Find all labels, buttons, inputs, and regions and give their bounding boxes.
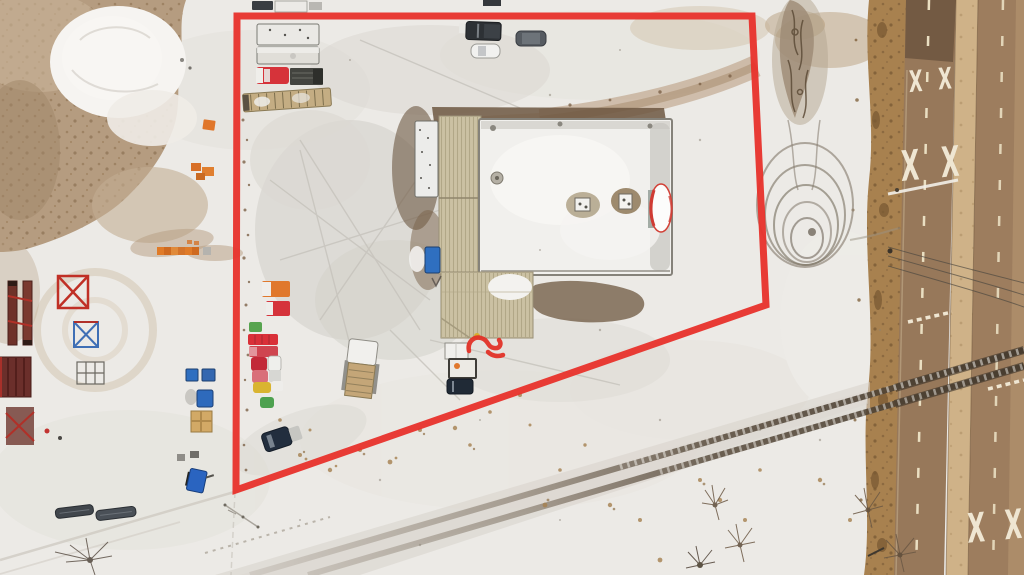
open-trailer — [449, 359, 476, 378]
brush-debris-strip — [772, 0, 828, 125]
aerial-photo: X X X X X X — [0, 0, 1024, 575]
trailer-cargo — [454, 363, 460, 369]
speck — [180, 58, 184, 62]
pink-car — [252, 370, 268, 383]
snow-spill — [107, 90, 197, 146]
blue-bin — [202, 369, 215, 381]
maroon-truck-block — [0, 357, 31, 397]
dark-car-edge — [483, 0, 501, 6]
hvac-unit — [575, 198, 590, 211]
white-trailer-small — [450, 0, 472, 8]
yellow-car — [253, 382, 271, 393]
utility-pole — [888, 249, 893, 254]
red-pink-truck-front — [249, 347, 257, 356]
road-dark-patch — [905, 0, 956, 62]
gray-car — [269, 370, 281, 382]
dump-truck-cab — [347, 339, 379, 366]
orange-truck-cab — [262, 282, 271, 296]
green-mini-car — [260, 397, 274, 408]
orange-equipment — [202, 119, 215, 131]
white-trailer — [275, 1, 307, 12]
red-truck-windshield — [264, 69, 270, 82]
gray-equipment — [185, 389, 197, 405]
crossing-x-marking-bottom: X X — [967, 499, 1024, 553]
dark-truck — [252, 1, 273, 10]
dark-pickup-south — [447, 379, 473, 394]
utility-pole — [895, 188, 899, 192]
storage-trailer — [257, 24, 319, 45]
green-cab — [249, 322, 262, 332]
red-car — [251, 357, 267, 371]
roof-tan-mid-ribs — [439, 198, 481, 274]
blue-dumpster — [425, 247, 440, 273]
parked-trailer — [415, 121, 438, 197]
crossing-x-marking-top: X X — [908, 60, 957, 99]
white-car-small — [272, 381, 283, 391]
red-stake-truck — [248, 334, 278, 345]
red-flatbed-cab — [266, 302, 273, 315]
roof-tan-north-ribs — [439, 116, 481, 198]
gray-van-roof — [522, 33, 540, 44]
blue-machine — [197, 390, 213, 407]
red-striped-rack — [6, 407, 34, 445]
highway: X X X X X X — [852, 0, 1024, 575]
dark-marker — [58, 436, 62, 440]
roof-main-top-shade — [481, 121, 670, 129]
green-cab-box — [262, 322, 271, 332]
roof-bolt — [558, 122, 563, 127]
red-truck-hood — [256, 68, 263, 83]
roof-bolt — [648, 124, 653, 129]
hvac-unit — [619, 194, 632, 209]
roof-bolt — [490, 125, 496, 131]
speck — [188, 66, 191, 69]
white-car-window — [478, 46, 486, 56]
roof-vent-cap — [495, 176, 499, 180]
blue-bin — [186, 369, 198, 381]
pallet-stack-tan — [191, 411, 212, 432]
crate — [190, 451, 199, 458]
white-car — [268, 356, 281, 371]
gray-equipment — [309, 2, 322, 10]
crate — [177, 454, 185, 461]
snow-mound-small — [409, 246, 425, 272]
flatbed-cab — [313, 69, 323, 84]
aerial-photo-canvas: X X X X X X — [0, 0, 1024, 575]
roof-snow-patch — [488, 274, 532, 300]
red-marker — [45, 429, 50, 434]
